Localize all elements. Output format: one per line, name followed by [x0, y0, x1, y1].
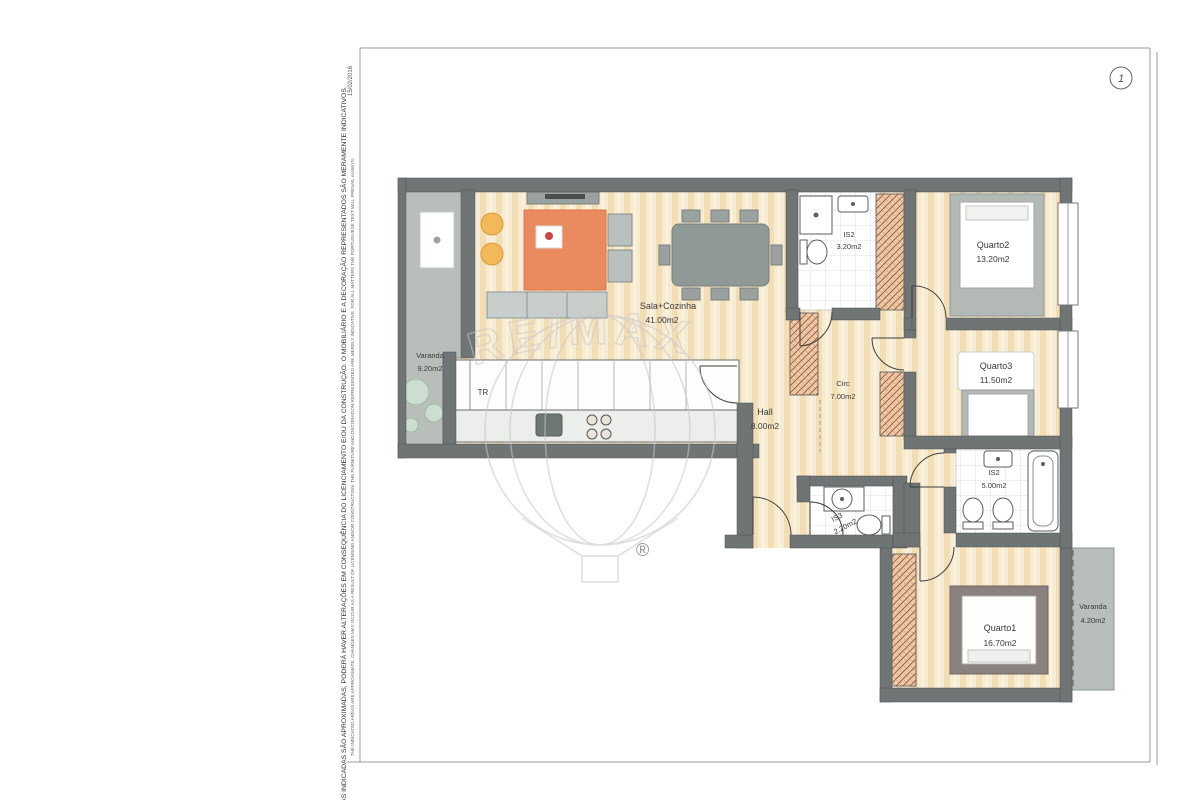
flower-icon — [545, 232, 553, 240]
date-stamp: 15/02/2016 — [348, 65, 354, 96]
wall-segment — [956, 533, 1072, 547]
dining-chair — [740, 288, 758, 300]
wall-segment — [944, 449, 956, 453]
balloon-basket-icon — [582, 556, 618, 582]
toilet-cistern — [963, 522, 983, 529]
basin-drain-icon — [851, 202, 855, 206]
dining-chair — [771, 245, 782, 265]
wall-segment — [1060, 408, 1072, 548]
room-label-varanda-right: Varanda — [1079, 602, 1108, 611]
wall-segment — [904, 330, 916, 338]
disclaimer-english: THE INDICATED AREAS ARE APPROXIMATE, CHA… — [350, 158, 355, 757]
shelf-unit — [608, 214, 632, 246]
dining-chair — [682, 288, 700, 300]
toilet — [807, 240, 827, 264]
wall-segment — [944, 487, 956, 533]
room-label-quarto2: Quarto2 — [977, 240, 1010, 250]
room-area-is-top: 3.20m2 — [836, 242, 861, 251]
room-label-sala-cozinha: Sala+Cozinha — [640, 301, 696, 311]
sink — [536, 414, 562, 436]
basin-drain-icon — [840, 497, 844, 501]
toilet-cistern — [800, 240, 807, 264]
shower-drain-icon — [814, 213, 819, 218]
bed-quarto2-pillow — [966, 206, 1028, 220]
dining-chair — [711, 288, 729, 300]
registered-symbol: ® — [636, 540, 649, 560]
balloon-ropes-icon — [522, 518, 678, 556]
room-label-is-right: IS2 — [988, 468, 999, 477]
room-area-quarto3: 11.50m2 — [980, 375, 1013, 385]
wall-segment — [786, 190, 798, 312]
wall-segment — [1060, 305, 1072, 333]
wall-segment — [880, 688, 1072, 702]
shelf-unit — [608, 250, 632, 282]
wall-segment — [443, 352, 456, 444]
hob-burner-icon — [601, 429, 611, 439]
dining-chair — [711, 210, 729, 222]
room-label-varanda-left: Varanda — [416, 351, 445, 360]
wall-segment — [790, 535, 893, 548]
room-area-quarto2: 13.20m2 — [976, 254, 1009, 264]
wall-segment — [797, 476, 810, 502]
hob-burner-icon — [587, 415, 597, 425]
wall-segment — [904, 190, 916, 330]
kitchen-units: TR — [443, 360, 739, 442]
toilet — [857, 515, 881, 535]
wall-segment — [1060, 178, 1072, 205]
room-label-circ: Circ — [836, 379, 850, 388]
bed-quarto1-pillow — [968, 650, 1030, 662]
disclaimer-portuguese: AS ÁREAS INDICADAS SÃO APROXIMADAS, PODE… — [339, 86, 348, 800]
dining-chair — [682, 210, 700, 222]
wall-segment — [832, 308, 880, 320]
wall-segment — [398, 178, 1072, 192]
wall-segment — [904, 436, 1072, 449]
wall-segment — [904, 372, 916, 440]
pouf — [481, 243, 503, 265]
hob-burner-icon — [587, 429, 597, 439]
bidet-base — [993, 522, 1013, 529]
wall-segment — [797, 476, 893, 486]
scanned-floor-plan-page: 1 15/02/2016 AS ÁREAS INDICADAS SÃO APRO… — [0, 0, 1199, 800]
room-label-quarto3: Quarto3 — [980, 361, 1013, 371]
room-label-is-top: IS2 — [843, 230, 854, 239]
room-area-quarto1: 16.70m2 — [983, 638, 1016, 648]
dining-table — [672, 224, 769, 286]
wardrobe-corridor — [790, 313, 818, 395]
dining-chair — [740, 210, 758, 222]
wall-segment — [786, 308, 800, 320]
tv-icon — [545, 194, 585, 199]
balcony-table-detail — [434, 237, 441, 244]
wall-segment — [893, 533, 920, 547]
dining-chair — [659, 245, 670, 265]
wall-segment — [725, 535, 753, 548]
room-area-sala-cozinha: 41.00m2 — [645, 315, 678, 325]
rug — [524, 210, 606, 290]
room-area-circ: 7.00m2 — [830, 392, 855, 401]
room-label-hall: Hall — [757, 407, 773, 417]
room-area-varanda-left: 9.20m2 — [417, 364, 442, 373]
plant-icon — [403, 379, 429, 405]
toilet — [963, 498, 983, 522]
wall-segment — [904, 318, 912, 330]
room-area-varanda-right: 4.20m2 — [1080, 616, 1105, 625]
room-area-hall: 8.00m2 — [751, 421, 780, 431]
wall-segment — [398, 178, 406, 458]
bed-quarto3-mattress — [968, 394, 1028, 436]
bedroom-furniture — [950, 194, 1048, 674]
wardrobe-quarto1 — [892, 554, 916, 686]
wall-segment — [1060, 548, 1072, 702]
floor-plan-canvas: 1 15/02/2016 AS ÁREAS INDICADAS SÃO APRO… — [0, 0, 1199, 800]
wardrobe-top — [876, 194, 904, 310]
plant-icon — [425, 404, 443, 422]
basin-drain-icon — [996, 457, 1000, 461]
wardrobe-quarto3 — [880, 372, 904, 436]
room-label-quarto1: Quarto1 — [984, 623, 1017, 633]
tub-drain-icon — [1041, 462, 1045, 466]
hob-burner-icon — [601, 415, 611, 425]
wall-segment — [398, 444, 759, 458]
wall-segment — [880, 548, 892, 702]
room-area-is-right: 5.00m2 — [981, 481, 1006, 490]
wall-segment — [946, 318, 1072, 330]
toilet-cistern — [882, 516, 890, 534]
sheet-number: 1 — [1118, 73, 1124, 85]
bidet — [993, 498, 1013, 522]
pouf — [481, 213, 503, 235]
room-label-tr: TR — [478, 388, 489, 397]
